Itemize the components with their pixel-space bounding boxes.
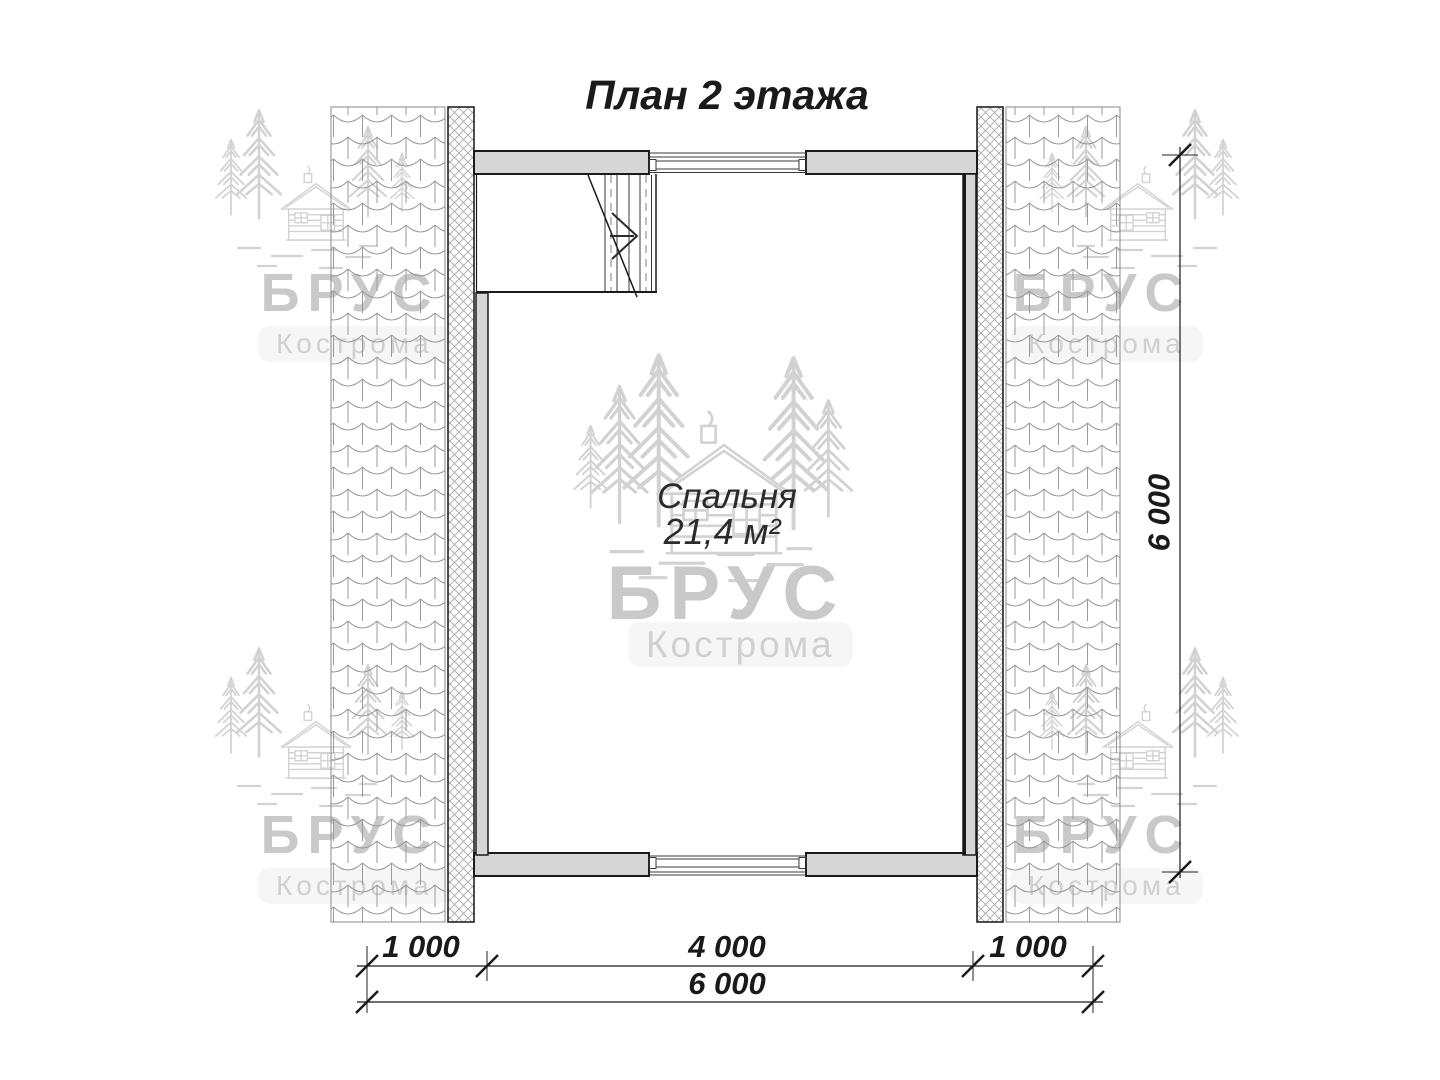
room-area-label: 21,4 м² (622, 514, 822, 550)
floor-plan-sheet: БРУС Кострома БРУС Кострома БРУС Костром… (0, 0, 1440, 1080)
dim-bottom-room-width: 4 000 (652, 931, 802, 962)
watermark-art-bottom-right (1040, 648, 1238, 806)
dim-bottom-left-overhang: 1 000 (346, 931, 496, 962)
room-name-label: Спальня (627, 479, 827, 514)
watermark-brand-top-left: БРУС (244, 266, 456, 320)
roof-hatch-left (331, 107, 445, 922)
watermark-art-bottom-left (216, 648, 414, 806)
watermark-city-bottom-left: Кострома (258, 868, 451, 904)
stair-break-line (588, 175, 637, 297)
stair (476, 174, 657, 297)
watermark-city-top-left: Кострома (258, 326, 451, 362)
stair-dashed-lines (611, 175, 646, 291)
watermark-brand-bottom-right: БРУС (996, 808, 1208, 862)
watermark-city-center: Кострома (628, 622, 853, 667)
watermark-art-top-right (1040, 110, 1238, 268)
wall-left (476, 293, 488, 855)
wall-right (963, 174, 976, 855)
watermark-city-bottom-right: Кострома (1010, 868, 1203, 904)
dim-right-height: 6 000 (1144, 438, 1175, 588)
watermark-brand-center: БРУС (606, 556, 846, 632)
gable-hatch-right (977, 107, 1003, 922)
wall-bottom-left (474, 853, 649, 876)
window-top (649, 153, 806, 173)
wall-top-left (474, 151, 649, 174)
wall-top-right (806, 151, 977, 174)
stair-treads (605, 175, 652, 291)
window-bottom (649, 856, 806, 875)
page-title: План 2 этажа (527, 75, 927, 116)
watermark-city-top-right: Кострома (1010, 326, 1203, 362)
gable-hatch-left (448, 107, 474, 922)
dim-bottom-right-overhang: 1 000 (953, 931, 1103, 962)
dim-bottom-total: 6 000 (652, 968, 802, 999)
watermark-art-top-left (216, 110, 414, 268)
watermark-brand-bottom-left: БРУС (244, 808, 456, 862)
stair-direction-arrow (610, 213, 637, 259)
roof-hatch-right (1006, 107, 1120, 922)
watermark-brand-top-right: БРУС (996, 266, 1208, 320)
wall-bottom-right (806, 853, 977, 876)
